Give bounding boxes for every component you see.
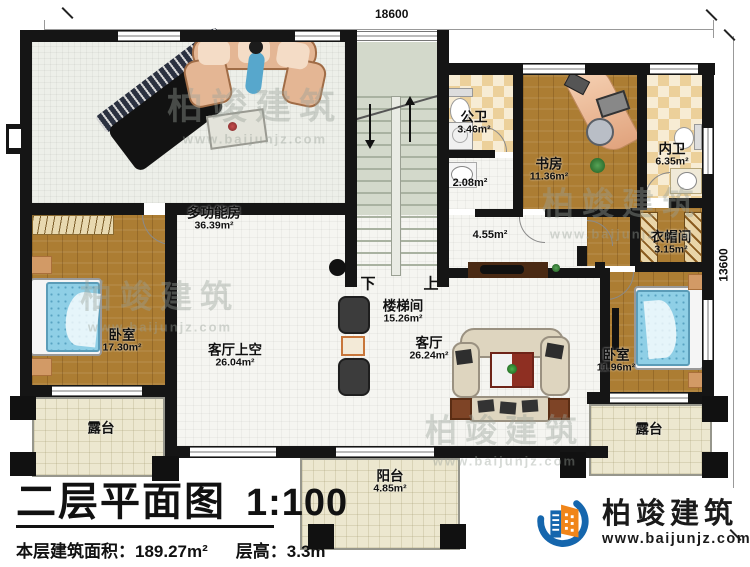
- brand-name: 柏竣建筑: [602, 499, 750, 531]
- room-name: 露台: [88, 420, 115, 435]
- room-label-basin-area: 2.08m²: [453, 177, 488, 189]
- room-name: 卧室: [603, 348, 630, 363]
- room-label-terrace-right: 露台: [636, 421, 663, 436]
- room-name: 衣帽间: [651, 230, 692, 245]
- room-area: 11.36m²: [530, 172, 569, 184]
- room-name: 阳台: [377, 469, 404, 484]
- room-area: 3.15m²: [654, 245, 687, 257]
- wall: [637, 198, 645, 208]
- page-title: 二层平面图1:100: [16, 482, 348, 522]
- sofa-cushion-dark: [500, 401, 517, 414]
- wall: [630, 208, 640, 266]
- toilet-tank-icon: [447, 88, 473, 97]
- room-label-multifunction: 多功能房 36.39m²: [187, 206, 241, 233]
- window: [295, 31, 340, 41]
- window: [190, 447, 276, 457]
- nightstand: [30, 256, 52, 274]
- tv-icon: [612, 308, 619, 350]
- floor-plan: 18600 13600: [0, 0, 750, 567]
- armchair: [338, 296, 370, 334]
- window: [703, 128, 713, 174]
- dimension-line-right: [733, 36, 734, 488]
- terrace-left-floor: [32, 397, 165, 477]
- floor-area-label: 本层建筑面积：: [16, 542, 135, 561]
- balcony-door-window: [336, 447, 434, 457]
- basin-icon: [677, 172, 697, 190]
- wall: [165, 203, 177, 458]
- nightstand: [30, 358, 52, 376]
- pillar: [440, 524, 466, 549]
- sofa-cushion-dark: [455, 349, 473, 365]
- armchair: [338, 358, 370, 396]
- end-table: [450, 398, 472, 420]
- plan-subtitle: 本层建筑面积：189.27m²层高：3.3m: [16, 537, 348, 562]
- brand-logo-icon: [532, 492, 594, 554]
- wall: [20, 203, 144, 215]
- room-label-living: 客厅 26.24m²: [409, 336, 448, 363]
- floor-height-label: 层高：: [236, 542, 287, 561]
- room-area: 15.26m²: [383, 314, 422, 326]
- title-underline: [16, 525, 274, 528]
- flower-decor-icon: [228, 122, 237, 131]
- room-area: 4.85m²: [373, 484, 406, 496]
- window: [52, 386, 142, 396]
- room-area: 17.30m²: [102, 343, 141, 355]
- stair-arrow-up-head-icon: [405, 96, 415, 105]
- stair-rail: [391, 96, 401, 276]
- wall: [635, 262, 712, 272]
- pillar: [152, 456, 179, 481]
- stair-arrow-up: [409, 104, 411, 142]
- plant-icon: [507, 364, 517, 374]
- sofa-cushion-dark: [545, 343, 564, 360]
- dimension-stub: [713, 20, 714, 38]
- brand-url: www.baijunjz.com: [602, 531, 750, 547]
- sofa-cushion-dark: [477, 399, 494, 413]
- wall: [637, 70, 647, 210]
- room-area: 3.46m²: [457, 125, 490, 137]
- room-label-public-bath: 公卫 3.46m²: [457, 110, 490, 137]
- wall: [445, 150, 495, 158]
- stair-down-label: 下: [360, 273, 375, 294]
- side-table: [341, 336, 365, 356]
- room-label-hallway: 4.55m²: [473, 229, 508, 241]
- room-area: 26.04m²: [215, 358, 254, 370]
- wall: [513, 70, 523, 217]
- room-label-stair-hall: 楼梯间 15.26m²: [383, 299, 424, 326]
- floor-area-value: 189.27m²: [135, 542, 208, 561]
- room-area: 4.55m²: [473, 229, 508, 241]
- pillar: [560, 452, 586, 478]
- dimension-right-value: 13600: [717, 245, 731, 284]
- wall: [600, 268, 610, 394]
- room-label-study: 书房 11.36m²: [530, 157, 569, 184]
- room-name: 客厅: [415, 336, 442, 351]
- wall: [437, 70, 449, 287]
- tick-mark: [705, 9, 717, 21]
- room-label-bedroom-right: 卧室 11.96m²: [597, 348, 636, 375]
- floor-height-value: 3.3m: [287, 542, 326, 561]
- plant-icon: [552, 264, 560, 272]
- pillar: [10, 452, 36, 476]
- plan-scale: 1:100: [246, 482, 348, 524]
- tick-mark: [723, 29, 735, 41]
- pillar: [702, 396, 728, 422]
- room-name: 内卫: [659, 142, 686, 157]
- wall: [545, 209, 640, 217]
- column-icon: [329, 259, 346, 276]
- stair-up-label: 上: [423, 273, 438, 294]
- room-label-living-void: 客厅上空 26.04m²: [208, 343, 262, 370]
- room-label-bedroom-left: 卧室 17.30m²: [102, 328, 141, 355]
- window: [357, 31, 437, 41]
- room-name: 书房: [536, 157, 563, 172]
- sofa-cushion: [198, 40, 230, 65]
- window: [523, 64, 585, 74]
- room-name: 客厅上空: [208, 343, 262, 358]
- brand-logo: 柏竣建筑 www.baijunjz.com: [532, 492, 750, 554]
- plan-title: 二层平面图: [16, 480, 226, 524]
- end-table: [548, 398, 570, 420]
- room-label-ensuite-bath: 内卫 6.35m²: [655, 142, 688, 169]
- pillar: [702, 452, 728, 478]
- sofa-cushion-dark: [522, 399, 539, 412]
- wall-pier-recess: [9, 129, 21, 148]
- terrace-right-floor: [589, 404, 712, 476]
- wall: [577, 246, 587, 266]
- wall: [513, 209, 521, 217]
- room-area: 11.96m²: [597, 363, 636, 375]
- room-area: 26.24m²: [409, 351, 448, 363]
- window: [610, 393, 688, 403]
- room-area: 6.35m²: [655, 157, 688, 169]
- toilet-tank-icon: [694, 124, 702, 150]
- room-label-cloakroom: 衣帽间 3.15m²: [651, 230, 692, 257]
- room-label-terrace-left: 露台: [88, 420, 115, 435]
- room-area: 2.08m²: [453, 177, 488, 189]
- wardrobe: [32, 215, 114, 235]
- room-name: 露台: [636, 421, 663, 436]
- room-area: 36.39m²: [194, 221, 233, 233]
- room-name: 多功能房: [187, 206, 241, 221]
- dimension-top-value: 18600: [372, 7, 411, 21]
- wall: [345, 30, 357, 287]
- room-name: 公卫: [461, 110, 488, 125]
- window: [118, 31, 180, 41]
- plant-icon: [590, 158, 605, 173]
- desk-chair: [586, 118, 614, 146]
- sofa-cushion: [275, 40, 311, 71]
- title-block: 二层平面图1:100 本层建筑面积：189.27m²层高：3.3m: [16, 482, 348, 562]
- person-head: [249, 40, 263, 54]
- room-label-balcony: 阳台 4.85m²: [373, 469, 406, 496]
- window: [650, 64, 698, 74]
- brand-text: 柏竣建筑 www.baijunjz.com: [602, 499, 750, 547]
- room-name: 楼梯间: [383, 299, 424, 314]
- window: [703, 300, 713, 360]
- stair-arrow-down-head-icon: [365, 140, 375, 149]
- room-name: 卧室: [108, 328, 135, 343]
- hallway-floor: [437, 215, 587, 267]
- pillar: [10, 396, 36, 420]
- tick-mark: [61, 7, 73, 19]
- stair-arrow-down: [369, 104, 371, 142]
- tv-icon: [480, 265, 524, 274]
